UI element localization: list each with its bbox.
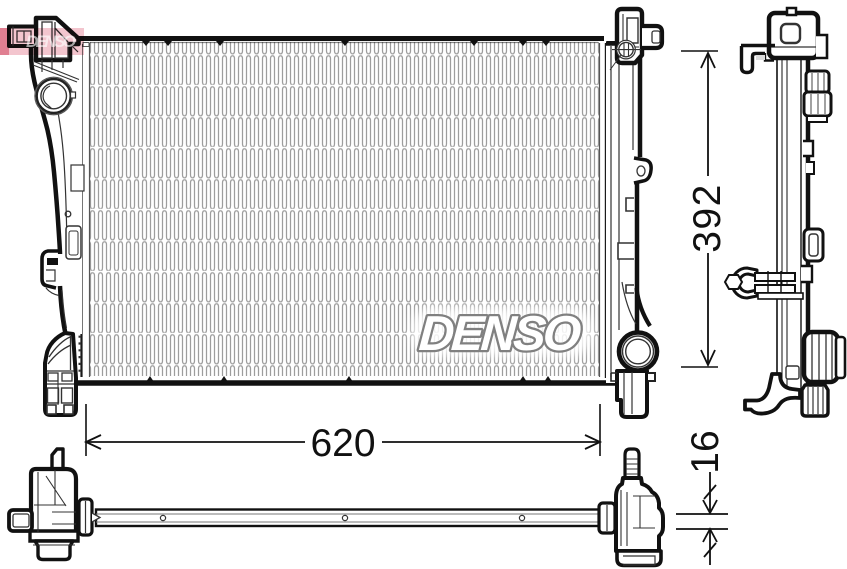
svg-text:16: 16 bbox=[684, 430, 727, 473]
svg-text:392: 392 bbox=[686, 183, 729, 253]
svg-text:DENSO: DENSO bbox=[26, 32, 76, 51]
svg-text:DENSO: DENSO bbox=[417, 307, 583, 361]
svg-text:620: 620 bbox=[310, 422, 375, 465]
